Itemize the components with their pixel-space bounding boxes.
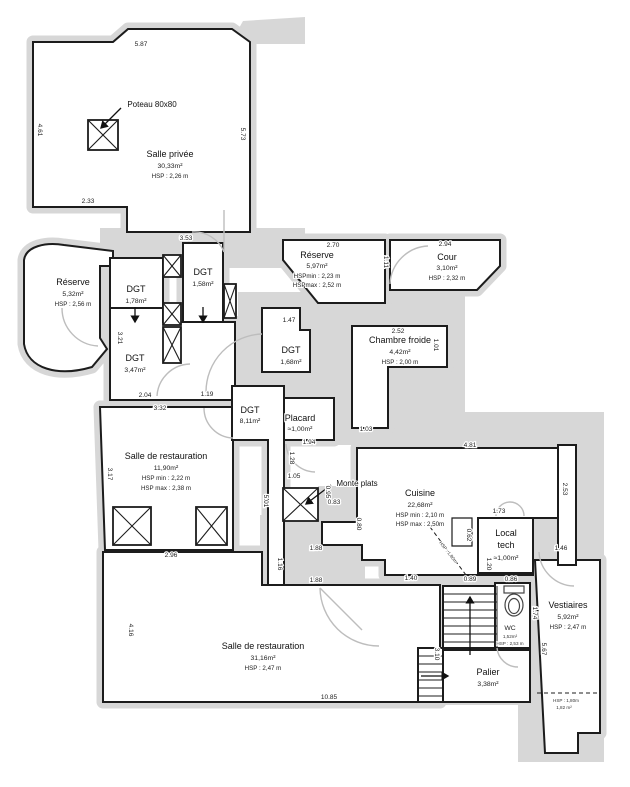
dim-1-74: 1.74 [531,607,538,620]
label-vestiaires: Vestiaires [548,600,588,610]
hsp-cour: HSP : 2,32 m [429,275,466,282]
area-wc: 1,52m² [503,634,518,639]
area-salle-restauration-1: 11,90m² [154,465,179,472]
column-dgt-3 [163,327,181,363]
label-reserve-nord: Réserve [300,250,334,260]
hsp-salle-privee: HSP : 2,26 m [152,173,189,180]
dim-3-17: 3.17 [106,468,113,481]
dim-2-04: 2.04 [139,392,152,399]
hsp-wc: HSP : 2,53 m [496,641,523,646]
dim-1-05: 1.05 [288,473,301,480]
label-local-tech-1: Local [495,528,517,538]
label-monte-plats: Monte plats [336,479,377,488]
dim-1-88-a: 1.88 [310,545,323,552]
dim-1-47: 1.47 [283,317,296,324]
dim-2-70: 2.70 [327,242,340,249]
area-salle-privee: 30,33m² [158,163,184,170]
label-wc: WC [504,625,515,632]
area-vestiaires: 5,92m² [557,614,579,621]
column-salle1-left [113,507,151,545]
area-dgt-b: 1,58m² [192,281,214,288]
area-dgt-e: 8,11m² [240,418,261,425]
area-cour: 3,10m² [436,265,458,272]
label-dgt-b: DGT [194,267,214,277]
column-dgt-1 [163,255,181,277]
room-vestiaires [535,560,600,753]
dim-2-53: 2.53 [561,483,568,496]
dim-5-73: 5.73 [239,128,246,141]
dim-5-87: 5.87 [135,41,148,48]
dim-0-95: 0.95 [324,486,331,499]
dim-3-21: 3.21 [116,332,123,345]
toilet-tank [504,586,524,593]
area-placard: ≈1,00m² [288,426,314,433]
dim-3-53: 3.53 [180,235,193,242]
column-dgt-4 [224,284,236,318]
hspmin-cuisine: HSP min : 2,10 m [396,512,444,519]
label-salle-restauration-2: Salle de restauration [222,641,305,651]
label-poteau: Poteau 80x80 [127,100,177,109]
dim-1-40: 1.40 [405,575,418,582]
hspmax-cuisine: HSP max : 2,50m [396,521,444,528]
label-salle-privee: Salle privée [146,149,193,159]
label-dgt-e: DGT [241,405,261,415]
dim-1-20: 1.20 [485,558,492,571]
hspmin-reserve-nord: HSPmin : 2,23 m [294,273,341,280]
dim-4-81: 4.81 [464,442,477,449]
dim-3-10: 3.10 [433,648,440,661]
dim-0-83: 0.83 [328,499,341,506]
dim-1-46: 1.46 [555,545,568,552]
floor-plan-drawing: Salle privée 30,33m² HSP : 2,26 m Poteau… [0,0,630,787]
label-salle-restauration-1: Salle de restauration [125,451,208,461]
label-dgt-a: DGT [127,284,147,294]
column-dgt-2 [163,303,181,325]
dim-3-32: 3.32 [154,405,167,412]
dim-1-88-b: 1.88 [310,577,323,584]
dim-2-52: 2.52 [392,328,405,335]
label-reserve-ouest: Réserve [56,277,90,287]
monte-plats-shaft [283,488,318,521]
dim-1-19: 1.19 [201,391,214,398]
niche-hsp: HSP : 1,80m [553,698,579,703]
dim-2-96: 2.96 [165,552,178,559]
dim-10-85: 10.85 [321,694,338,701]
label-dgt-c: DGT [126,353,146,363]
label-palier: Palier [476,667,499,677]
label-chambre-froide: Chambre froide [369,335,431,345]
hspmax-reserve-nord: HSPmax : 2,52 m [293,282,342,289]
dim-4-16: 4.16 [127,624,134,637]
dim-1-94: 1.94 [303,439,316,446]
hsp-salle-restauration-2: HSP : 2,47 m [245,665,282,672]
dim-0-86: 0.86 [505,576,518,583]
area-dgt-a: 1,78m² [125,298,147,305]
dim-1-03: 1.03 [360,426,373,433]
label-local-tech-2: tech [497,540,514,550]
area-reserve-nord: 5,97m² [306,263,328,270]
area-reserve-ouest: 5,32m² [62,291,84,298]
dim-0-62: 0.62 [465,529,472,542]
dim-0-80: 0.80 [355,518,362,531]
hspmin-salle-restauration-1: HSP min : 2,22 m [142,475,190,482]
floor-plan-sheet: Salle privée 30,33m² HSP : 2,26 m Poteau… [0,0,630,787]
column-salle1-right [196,507,227,545]
hspmax-salle-restauration-1: HSP max : 2,38 m [141,485,191,492]
dim-1-28: 1.28 [288,452,295,465]
label-cour: Cour [437,252,457,262]
area-local-tech: ≈1,00m² [494,555,520,562]
dim-4-61: 4.61 [36,124,43,137]
column-poteau [88,120,118,150]
area-chambre-froide: 4,42m² [389,349,411,356]
hsp-reserve-ouest: HSP : 2,56 m [55,301,92,308]
area-salle-restauration-2: 31,16m² [251,655,277,662]
dim-1-16: 1.16 [276,558,283,571]
toilet-bowl-inner [509,599,520,614]
room-salle-privee [33,29,250,232]
dim-2-94: 2.94 [439,241,452,248]
label-cuisine: Cuisine [405,488,435,498]
dim-1-11: 1.11 [382,256,389,269]
dim-2-33: 2.33 [82,198,95,205]
area-dgt-c: 3,47m² [124,367,146,374]
dim-5-67: 5.67 [540,643,547,656]
area-cuisine: 22,68m² [408,502,434,509]
dim-5-01: 5.01 [262,495,269,508]
label-dgt-d: DGT [282,345,302,355]
hsp-chambre-froide: HSP : 2,00 m [382,359,419,366]
area-palier: 3,38m² [477,681,499,688]
hsp-vestiaires: HSP : 2,47 m [550,624,587,631]
niche-area: 1,82 m² [556,705,572,710]
dim-0-89: 0.89 [464,576,477,583]
label-placard: Placard [285,413,316,423]
dim-1-73: 1.73 [493,508,506,515]
dim-1-01: 1.01 [432,339,439,352]
area-dgt-d: 1,68m² [280,359,302,366]
